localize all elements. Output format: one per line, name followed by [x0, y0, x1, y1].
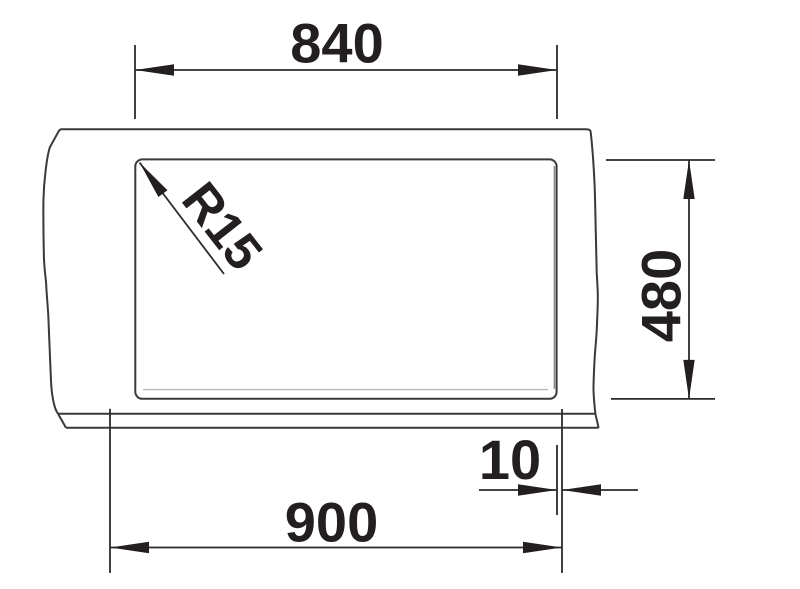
svg-text:R15: R15: [171, 172, 274, 281]
svg-text:900: 900: [285, 491, 378, 554]
svg-text:480: 480: [630, 249, 693, 342]
svg-text:840: 840: [290, 12, 383, 75]
svg-text:10: 10: [479, 428, 541, 491]
